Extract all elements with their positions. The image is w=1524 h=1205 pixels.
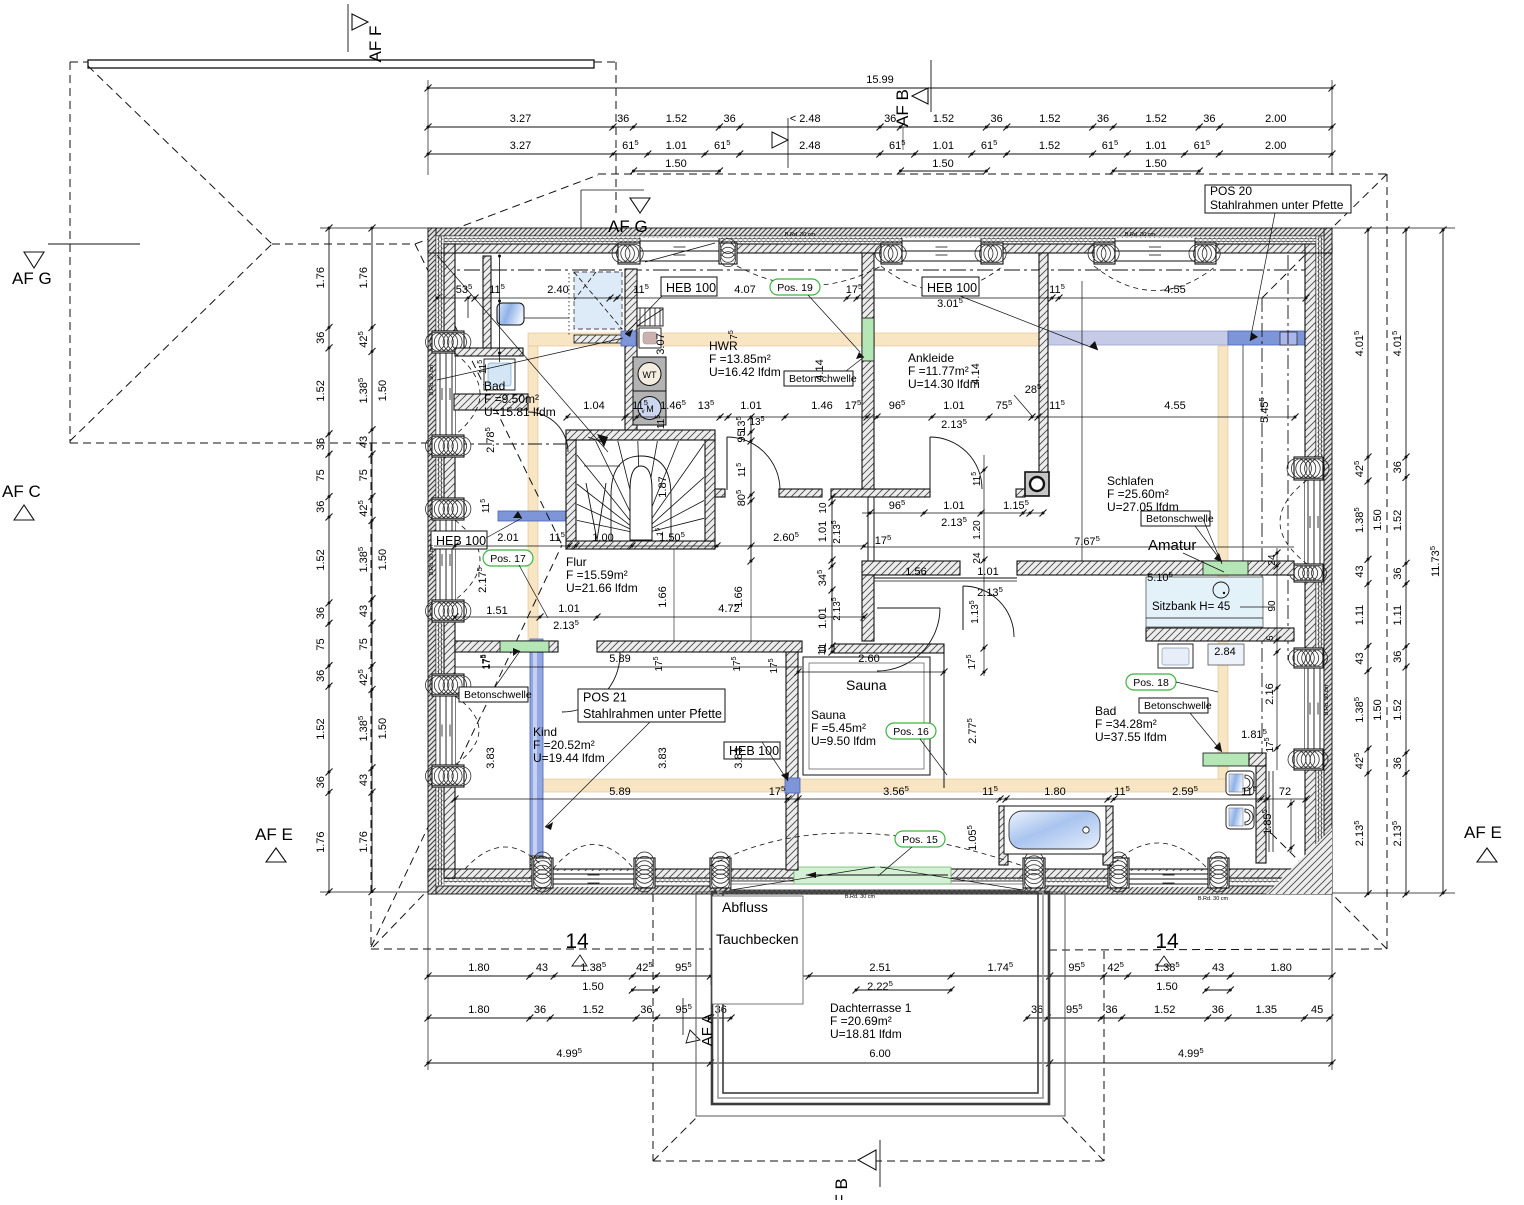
svg-text:2.48: 2.48 (799, 140, 820, 152)
svg-text:Sauna: Sauna (846, 677, 887, 693)
svg-text:B.Rd. 30 cm: B.Rd. 30 cm (429, 544, 435, 575)
svg-text:14: 14 (565, 930, 589, 953)
svg-text:Betonschwelle: Betonschwelle (1144, 700, 1212, 712)
svg-text:1.87: 1.87 (657, 476, 669, 497)
svg-text:36: 36 (315, 438, 327, 450)
svg-text:1.52: 1.52 (315, 380, 327, 401)
svg-text:U=21.66 lfdm: U=21.66 lfdm (566, 581, 638, 595)
svg-text:1.11: 1.11 (1354, 605, 1366, 626)
svg-text:B.Rd. 30 cm: B.Rd. 30 cm (429, 364, 435, 395)
svg-text:1.20: 1.20 (972, 520, 983, 540)
svg-text:1.50: 1.50 (1156, 981, 1177, 993)
svg-text:36: 36 (723, 113, 735, 125)
svg-text:1.56: 1.56 (905, 566, 926, 578)
svg-text:45: 45 (1311, 1004, 1323, 1016)
svg-text:F =34.28m²: F =34.28m² (1095, 717, 1157, 731)
svg-text:2.51: 2.51 (869, 962, 890, 974)
svg-text:1.50: 1.50 (665, 158, 686, 170)
svg-text:1.52: 1.52 (1039, 113, 1060, 125)
svg-text:1.50: 1.50 (377, 718, 389, 739)
svg-text:Bad: Bad (1095, 704, 1116, 718)
svg-text:Sitzbank H= 45: Sitzbank H= 45 (1152, 601, 1230, 613)
svg-text:AF E: AF E (1464, 823, 1502, 842)
svg-text:<: < (790, 113, 796, 125)
svg-text:Schlafen: Schlafen (1107, 474, 1154, 488)
svg-text:15.99: 15.99 (866, 74, 894, 86)
svg-text:AF A: AF A (699, 1014, 716, 1047)
svg-text:Stahlrahmen unter Pfette: Stahlrahmen unter Pfette (1210, 198, 1344, 212)
svg-text:1.80: 1.80 (1044, 786, 1065, 798)
svg-text:43: 43 (1354, 652, 1366, 664)
svg-text:36: 36 (1392, 757, 1404, 769)
svg-text:F =5.45m²: F =5.45m² (811, 721, 866, 735)
svg-text:36: 36 (534, 1004, 546, 1016)
svg-text:43: 43 (1212, 962, 1224, 974)
svg-text:2.48: 2.48 (799, 113, 820, 125)
svg-text:Pos. 15: Pos. 15 (902, 834, 938, 846)
svg-text:2.84: 2.84 (1214, 646, 1235, 658)
svg-text:AF G: AF G (12, 269, 52, 288)
svg-text:AF B: AF B (832, 1178, 851, 1200)
svg-text:75: 75 (358, 638, 370, 650)
svg-text:1.01: 1.01 (977, 566, 998, 578)
svg-text:36: 36 (1105, 1004, 1117, 1016)
svg-text:Pos. 18: Pos. 18 (1133, 677, 1169, 689)
svg-text:1.76: 1.76 (315, 267, 327, 288)
svg-text:B.Rd. 30 cm: B.Rd. 30 cm (1324, 684, 1330, 715)
svg-text:3.27: 3.27 (510, 113, 531, 125)
svg-text:1.80: 1.80 (468, 962, 489, 974)
svg-text:43: 43 (1354, 565, 1366, 577)
svg-text:1.50: 1.50 (932, 158, 953, 170)
svg-text:Pos. 17: Pos. 17 (490, 553, 526, 565)
svg-text:Flur: Flur (566, 555, 587, 569)
svg-text:1.50: 1.50 (377, 549, 389, 570)
svg-text:75: 75 (315, 638, 327, 650)
svg-text:1.01: 1.01 (943, 400, 964, 412)
svg-text:4.55: 4.55 (1164, 400, 1185, 412)
svg-text:1.52: 1.52 (1154, 1004, 1175, 1016)
svg-text:36: 36 (315, 670, 327, 682)
svg-text:B.Rd. 30 cm: B.Rd. 30 cm (1198, 896, 1229, 902)
svg-text:Amatur: Amatur (1148, 537, 1196, 554)
svg-text:F =13.85m²: F =13.85m² (709, 352, 771, 366)
svg-text:3.83: 3.83 (733, 747, 745, 768)
svg-text:90: 90 (1267, 600, 1278, 612)
svg-text:36: 36 (990, 113, 1002, 125)
svg-text:POS 21: POS 21 (583, 691, 627, 705)
svg-text:1.80: 1.80 (1270, 962, 1291, 974)
svg-text:Bad: Bad (484, 379, 505, 393)
svg-text:36: 36 (315, 607, 327, 619)
svg-text:1.50: 1.50 (1372, 509, 1384, 530)
svg-text:AF B: AF B (893, 89, 912, 127)
svg-text:43: 43 (536, 962, 548, 974)
svg-text:36: 36 (315, 776, 327, 788)
svg-text:5.89: 5.89 (609, 653, 630, 665)
svg-text:24: 24 (972, 552, 983, 564)
svg-text:F =11.77m²: F =11.77m² (908, 364, 969, 378)
svg-text:5: 5 (1265, 635, 1275, 640)
svg-text:1.66: 1.66 (657, 586, 669, 607)
svg-text:F =9.50m²: F =9.50m² (484, 392, 539, 406)
svg-text:Abfluss: Abfluss (722, 899, 768, 915)
svg-text:1.52: 1.52 (315, 549, 327, 570)
svg-text:1.76: 1.76 (315, 831, 327, 852)
svg-text:1.01: 1.01 (933, 140, 954, 152)
svg-text:U=9.50 lfdm: U=9.50 lfdm (811, 734, 876, 748)
svg-text:75: 75 (315, 469, 327, 481)
svg-text:24: 24 (1267, 554, 1278, 566)
svg-text:1.52: 1.52 (933, 113, 954, 125)
svg-text:36: 36 (1392, 461, 1404, 473)
svg-text:1.00: 1.00 (592, 532, 613, 544)
svg-text:36: 36 (1031, 1004, 1043, 1016)
svg-text:1.52: 1.52 (582, 1004, 603, 1016)
svg-text:U=19.44 lfdm: U=19.44 lfdm (533, 751, 605, 765)
svg-text:WT: WT (643, 370, 657, 380)
svg-text:1.52: 1.52 (666, 113, 687, 125)
svg-text:1.01: 1.01 (943, 500, 964, 512)
svg-text:1.52: 1.52 (1392, 510, 1404, 531)
svg-text:1.51: 1.51 (486, 605, 507, 617)
svg-text:1.52: 1.52 (1392, 699, 1404, 720)
svg-text:6.00: 6.00 (869, 1048, 890, 1060)
svg-text:5.89: 5.89 (609, 786, 630, 798)
svg-text:POS 20: POS 20 (1210, 184, 1252, 198)
svg-text:F =15.59m²: F =15.59m² (566, 568, 628, 582)
svg-text:1.80: 1.80 (468, 1004, 489, 1016)
svg-text:4.72: 4.72 (718, 603, 739, 615)
svg-text:72: 72 (1279, 786, 1291, 798)
svg-text:HWR: HWR (709, 339, 738, 353)
svg-text:1.35: 1.35 (1256, 1004, 1277, 1016)
svg-text:4.07: 4.07 (734, 284, 755, 296)
svg-text:2.40: 2.40 (547, 284, 568, 296)
svg-text:HEB 100: HEB 100 (666, 281, 716, 295)
svg-text:4.14: 4.14 (814, 359, 826, 380)
svg-text:AF E: AF E (255, 825, 293, 844)
svg-text:2.00: 2.00 (1265, 113, 1286, 125)
svg-text:U=37.55 lfdm: U=37.55 lfdm (1095, 730, 1167, 744)
svg-text:Pos. 16: Pos. 16 (893, 726, 929, 738)
svg-text:Pos. 19: Pos. 19 (777, 282, 813, 294)
svg-text:1.50: 1.50 (377, 380, 389, 401)
svg-text:36: 36 (1212, 1004, 1224, 1016)
svg-text:Kind: Kind (533, 725, 557, 739)
svg-text:1.46: 1.46 (811, 400, 832, 412)
svg-text:1.50: 1.50 (1372, 699, 1384, 720)
svg-text:1.50: 1.50 (582, 981, 603, 993)
svg-text:36: 36 (315, 501, 327, 513)
svg-text:43: 43 (358, 436, 370, 448)
svg-text:Sauna: Sauna (811, 708, 846, 722)
svg-text:36: 36 (1097, 113, 1109, 125)
svg-text:36: 36 (640, 1004, 652, 1016)
svg-text:HEB 100: HEB 100 (927, 281, 977, 295)
svg-text:36: 36 (617, 113, 629, 125)
svg-text:1.76: 1.76 (358, 267, 370, 288)
svg-text:2.16: 2.16 (1264, 683, 1276, 704)
svg-text:B.Rd. 30 cm: B.Rd. 30 cm (1125, 232, 1156, 238)
svg-text:1.01: 1.01 (1145, 140, 1166, 152)
svg-text:1.52: 1.52 (1039, 140, 1060, 152)
svg-text:2.00: 2.00 (1265, 140, 1286, 152)
svg-text:1.76: 1.76 (358, 831, 370, 852)
svg-text:U=18.81 lfdm: U=18.81 lfdm (830, 1027, 902, 1041)
svg-text:1.11: 1.11 (1392, 605, 1404, 626)
svg-text:AF F: AF F (366, 26, 385, 63)
svg-text:AF G: AF G (608, 217, 648, 236)
svg-text:3.83: 3.83 (485, 747, 497, 768)
svg-text:11: 11 (817, 644, 828, 655)
svg-text:36: 36 (315, 332, 327, 344)
svg-text:Tauchbecken: Tauchbecken (716, 931, 799, 947)
svg-text:1.01: 1.01 (558, 603, 579, 615)
svg-text:95: 95 (736, 430, 748, 442)
svg-text:11.735: 11.735 (1428, 546, 1442, 577)
svg-text:1.01: 1.01 (740, 400, 761, 412)
svg-text:3.27: 3.27 (510, 140, 531, 152)
svg-text:U=15.81 lfdm: U=15.81 lfdm (484, 405, 556, 419)
svg-text:1.04: 1.04 (583, 400, 604, 412)
svg-text:AF C: AF C (2, 482, 41, 501)
svg-text:1.50: 1.50 (1145, 158, 1166, 170)
svg-text:F =20.69m²: F =20.69m² (830, 1014, 892, 1028)
svg-text:1.52: 1.52 (315, 718, 327, 739)
svg-text:2.01: 2.01 (497, 532, 518, 544)
svg-text:3.07: 3.07 (655, 333, 667, 354)
svg-text:Betonschwelle: Betonschwelle (464, 689, 532, 701)
svg-text:36: 36 (1392, 651, 1404, 663)
svg-text:2.60: 2.60 (858, 653, 879, 665)
svg-text:36: 36 (715, 1004, 727, 1016)
svg-text:4.55: 4.55 (1164, 284, 1185, 296)
svg-text:3.83: 3.83 (657, 747, 669, 768)
svg-text:1.52: 1.52 (1145, 113, 1166, 125)
svg-text:Stahlrahmen unter Pfette: Stahlrahmen unter Pfette (583, 707, 722, 721)
svg-text:U=14.30 lfdm: U=14.30 lfdm (908, 377, 980, 391)
svg-text:43: 43 (358, 774, 370, 786)
svg-text:36: 36 (1203, 113, 1215, 125)
svg-text:14: 14 (1155, 930, 1179, 953)
svg-text:10: 10 (818, 502, 829, 514)
svg-text:F =25.60m²: F =25.60m² (1107, 487, 1169, 501)
svg-text:1.01: 1.01 (817, 607, 829, 628)
svg-text:1.01: 1.01 (817, 521, 829, 542)
svg-text:Ankleide: Ankleide (908, 351, 954, 365)
svg-text:F =20.52m²: F =20.52m² (533, 738, 595, 752)
svg-text:Dachterrasse 1: Dachterrasse 1 (830, 1001, 912, 1015)
svg-text:1.01: 1.01 (666, 140, 687, 152)
svg-text:Betonschwelle: Betonschwelle (1146, 513, 1214, 525)
svg-text:B.Rd. 30 cm: B.Rd. 30 cm (845, 894, 876, 900)
svg-text:B.Rd. 30 cm: B.Rd. 30 cm (785, 232, 816, 238)
svg-text:U=16.42 lfdm: U=16.42 lfdm (709, 365, 781, 379)
svg-text:36: 36 (1392, 567, 1404, 579)
svg-text:43: 43 (358, 605, 370, 617)
svg-text:75: 75 (358, 469, 370, 481)
svg-text:4.14: 4.14 (970, 363, 982, 384)
